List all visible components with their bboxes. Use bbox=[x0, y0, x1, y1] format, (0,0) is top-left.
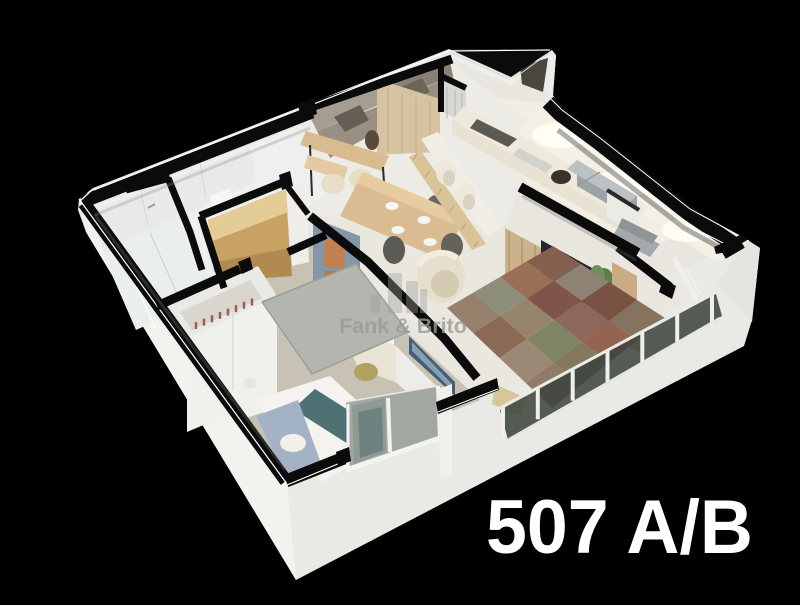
svg-text:507 A/B: 507 A/B bbox=[486, 485, 753, 570]
svg-text:Fank & Brito: Fank & Brito bbox=[339, 314, 467, 338]
